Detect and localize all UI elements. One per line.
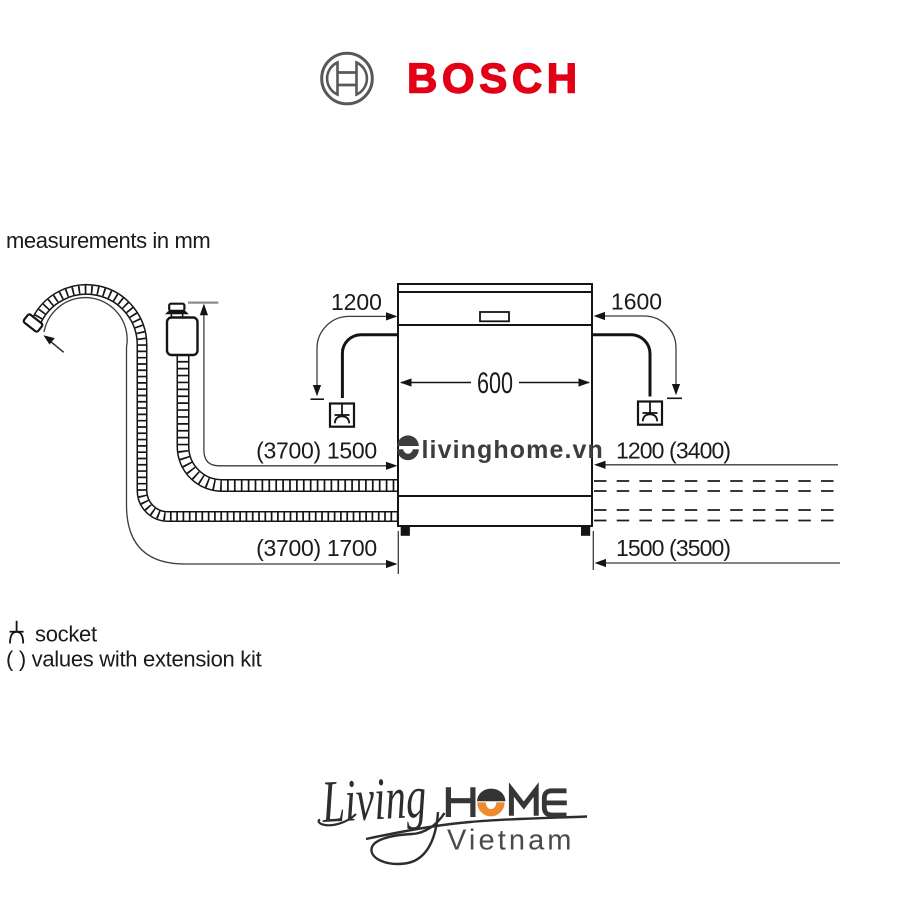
svg-text:(3700) 1500: (3700) 1500 — [256, 437, 377, 463]
svg-text:Vietnam: Vietnam — [447, 824, 575, 856]
svg-text:(3700) 1700: (3700) 1700 — [256, 535, 377, 561]
svg-text:1600: 1600 — [611, 288, 662, 314]
svg-text:( ) values with extension kit: ( ) values with extension kit — [6, 647, 262, 672]
svg-text:socket: socket — [35, 622, 97, 647]
svg-text:measurements in mm: measurements in mm — [6, 228, 210, 253]
svg-text:1500 (3500): 1500 (3500) — [616, 535, 730, 561]
svg-text:livinghome.vn: livinghome.vn — [422, 436, 604, 464]
svg-text:BOSCH: BOSCH — [407, 54, 582, 101]
svg-text:1200 (3400): 1200 (3400) — [616, 437, 730, 463]
svg-text:600: 600 — [477, 366, 513, 400]
svg-text:1200: 1200 — [331, 289, 382, 315]
